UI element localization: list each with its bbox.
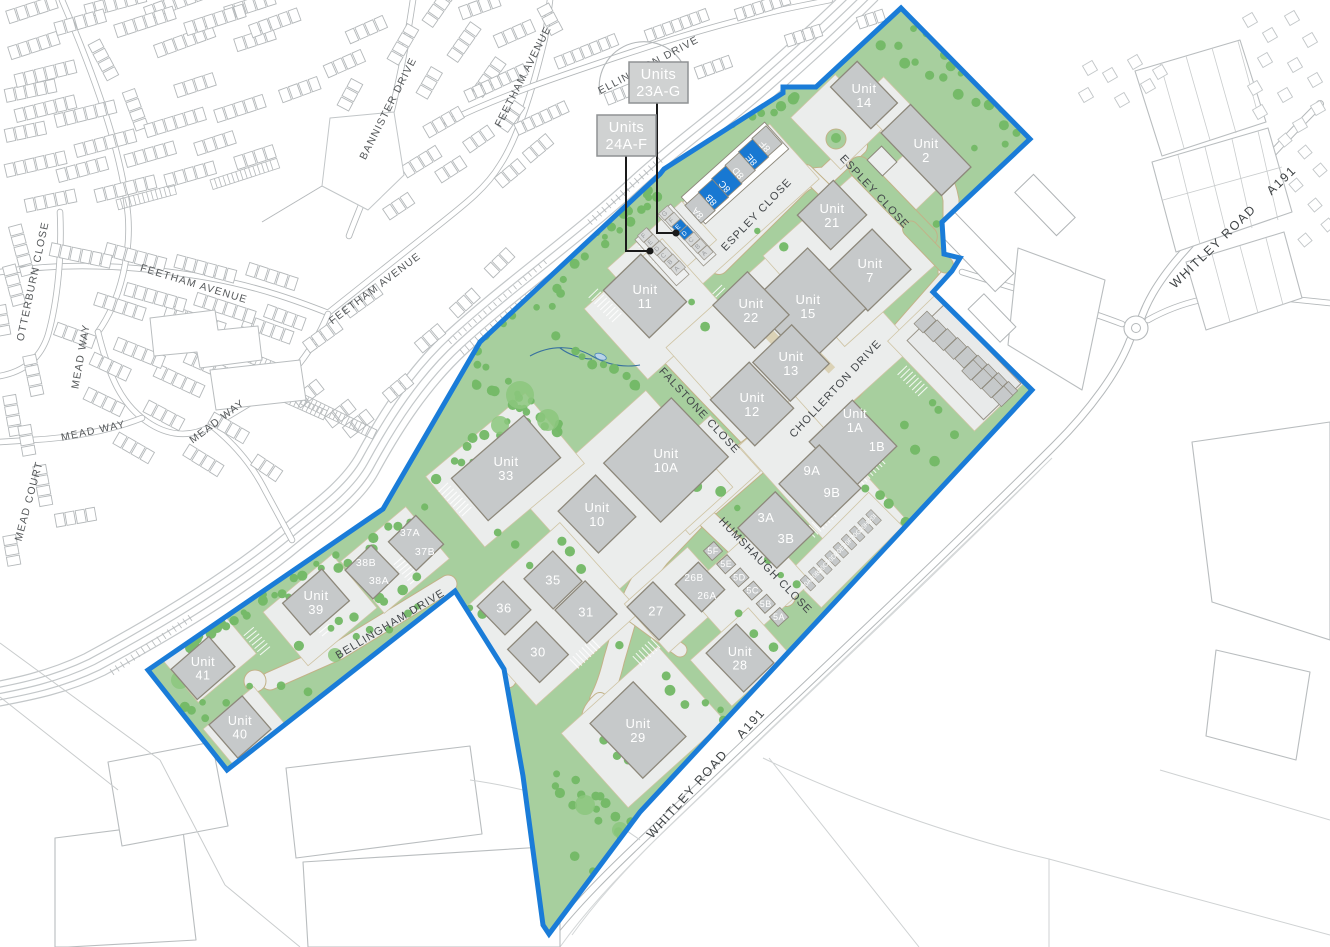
svg-text:40: 40 (233, 728, 248, 742)
svg-text:5B: 5B (760, 599, 772, 609)
svg-text:Unit: Unit (778, 349, 803, 364)
svg-text:12: 12 (744, 404, 759, 419)
svg-text:15: 15 (800, 306, 815, 321)
svg-text:3A: 3A (758, 510, 775, 525)
svg-text:38B: 38B (356, 557, 376, 569)
svg-text:26B: 26B (684, 573, 703, 584)
svg-text:5F: 5F (707, 546, 719, 556)
svg-text:Unit: Unit (738, 296, 763, 311)
svg-text:30: 30 (530, 645, 545, 660)
svg-text:38A: 38A (369, 575, 389, 587)
svg-text:2: 2 (922, 150, 930, 165)
svg-text:14: 14 (856, 95, 871, 110)
svg-text:3B: 3B (778, 531, 795, 546)
svg-text:1B: 1B (869, 440, 885, 454)
svg-text:11: 11 (638, 296, 653, 311)
svg-text:9B: 9B (824, 485, 841, 500)
svg-text:Unit: Unit (913, 136, 938, 151)
svg-text:Unit: Unit (493, 454, 518, 469)
svg-text:5C: 5C (746, 586, 759, 596)
svg-text:Units: Units (641, 67, 677, 83)
svg-text:26A: 26A (697, 591, 716, 602)
svg-text:27: 27 (648, 604, 663, 619)
svg-text:Unit: Unit (584, 500, 609, 515)
svg-text:10A: 10A (654, 460, 679, 475)
svg-text:37A: 37A (400, 527, 420, 539)
svg-text:13: 13 (783, 363, 798, 378)
svg-text:Unit: Unit (653, 446, 678, 461)
svg-text:Unit: Unit (739, 390, 764, 405)
svg-text:23A-G: 23A-G (636, 84, 680, 100)
svg-text:7: 7 (866, 270, 874, 285)
svg-text:22: 22 (743, 310, 758, 325)
svg-text:Units: Units (609, 120, 645, 136)
svg-text:5A: 5A (773, 612, 785, 622)
svg-text:5E: 5E (720, 559, 732, 569)
svg-text:35: 35 (545, 573, 560, 588)
svg-text:Unit: Unit (819, 201, 844, 216)
svg-text:24A-F: 24A-F (606, 137, 648, 153)
svg-text:21: 21 (824, 215, 839, 230)
svg-text:31: 31 (578, 605, 593, 620)
svg-text:39: 39 (308, 602, 323, 617)
svg-text:Unit: Unit (851, 81, 876, 96)
svg-text:5D: 5D (733, 572, 746, 582)
svg-text:Unit: Unit (303, 588, 328, 603)
svg-text:Unit: Unit (228, 714, 252, 728)
svg-text:37B: 37B (415, 546, 435, 558)
svg-text:Unit: Unit (843, 407, 867, 421)
svg-text:33: 33 (498, 468, 513, 483)
svg-text:Unit: Unit (191, 655, 215, 669)
svg-text:29: 29 (630, 730, 645, 745)
svg-text:41: 41 (196, 669, 211, 683)
svg-text:10: 10 (589, 514, 604, 529)
svg-text:Unit: Unit (728, 645, 752, 659)
svg-text:1A: 1A (847, 421, 863, 435)
svg-text:Unit: Unit (795, 292, 820, 307)
svg-text:36: 36 (496, 601, 511, 616)
svg-text:28: 28 (733, 659, 748, 673)
svg-text:Unit: Unit (625, 716, 650, 731)
svg-text:9A: 9A (804, 463, 821, 478)
svg-text:Unit: Unit (632, 282, 657, 297)
svg-text:Unit: Unit (857, 256, 882, 271)
